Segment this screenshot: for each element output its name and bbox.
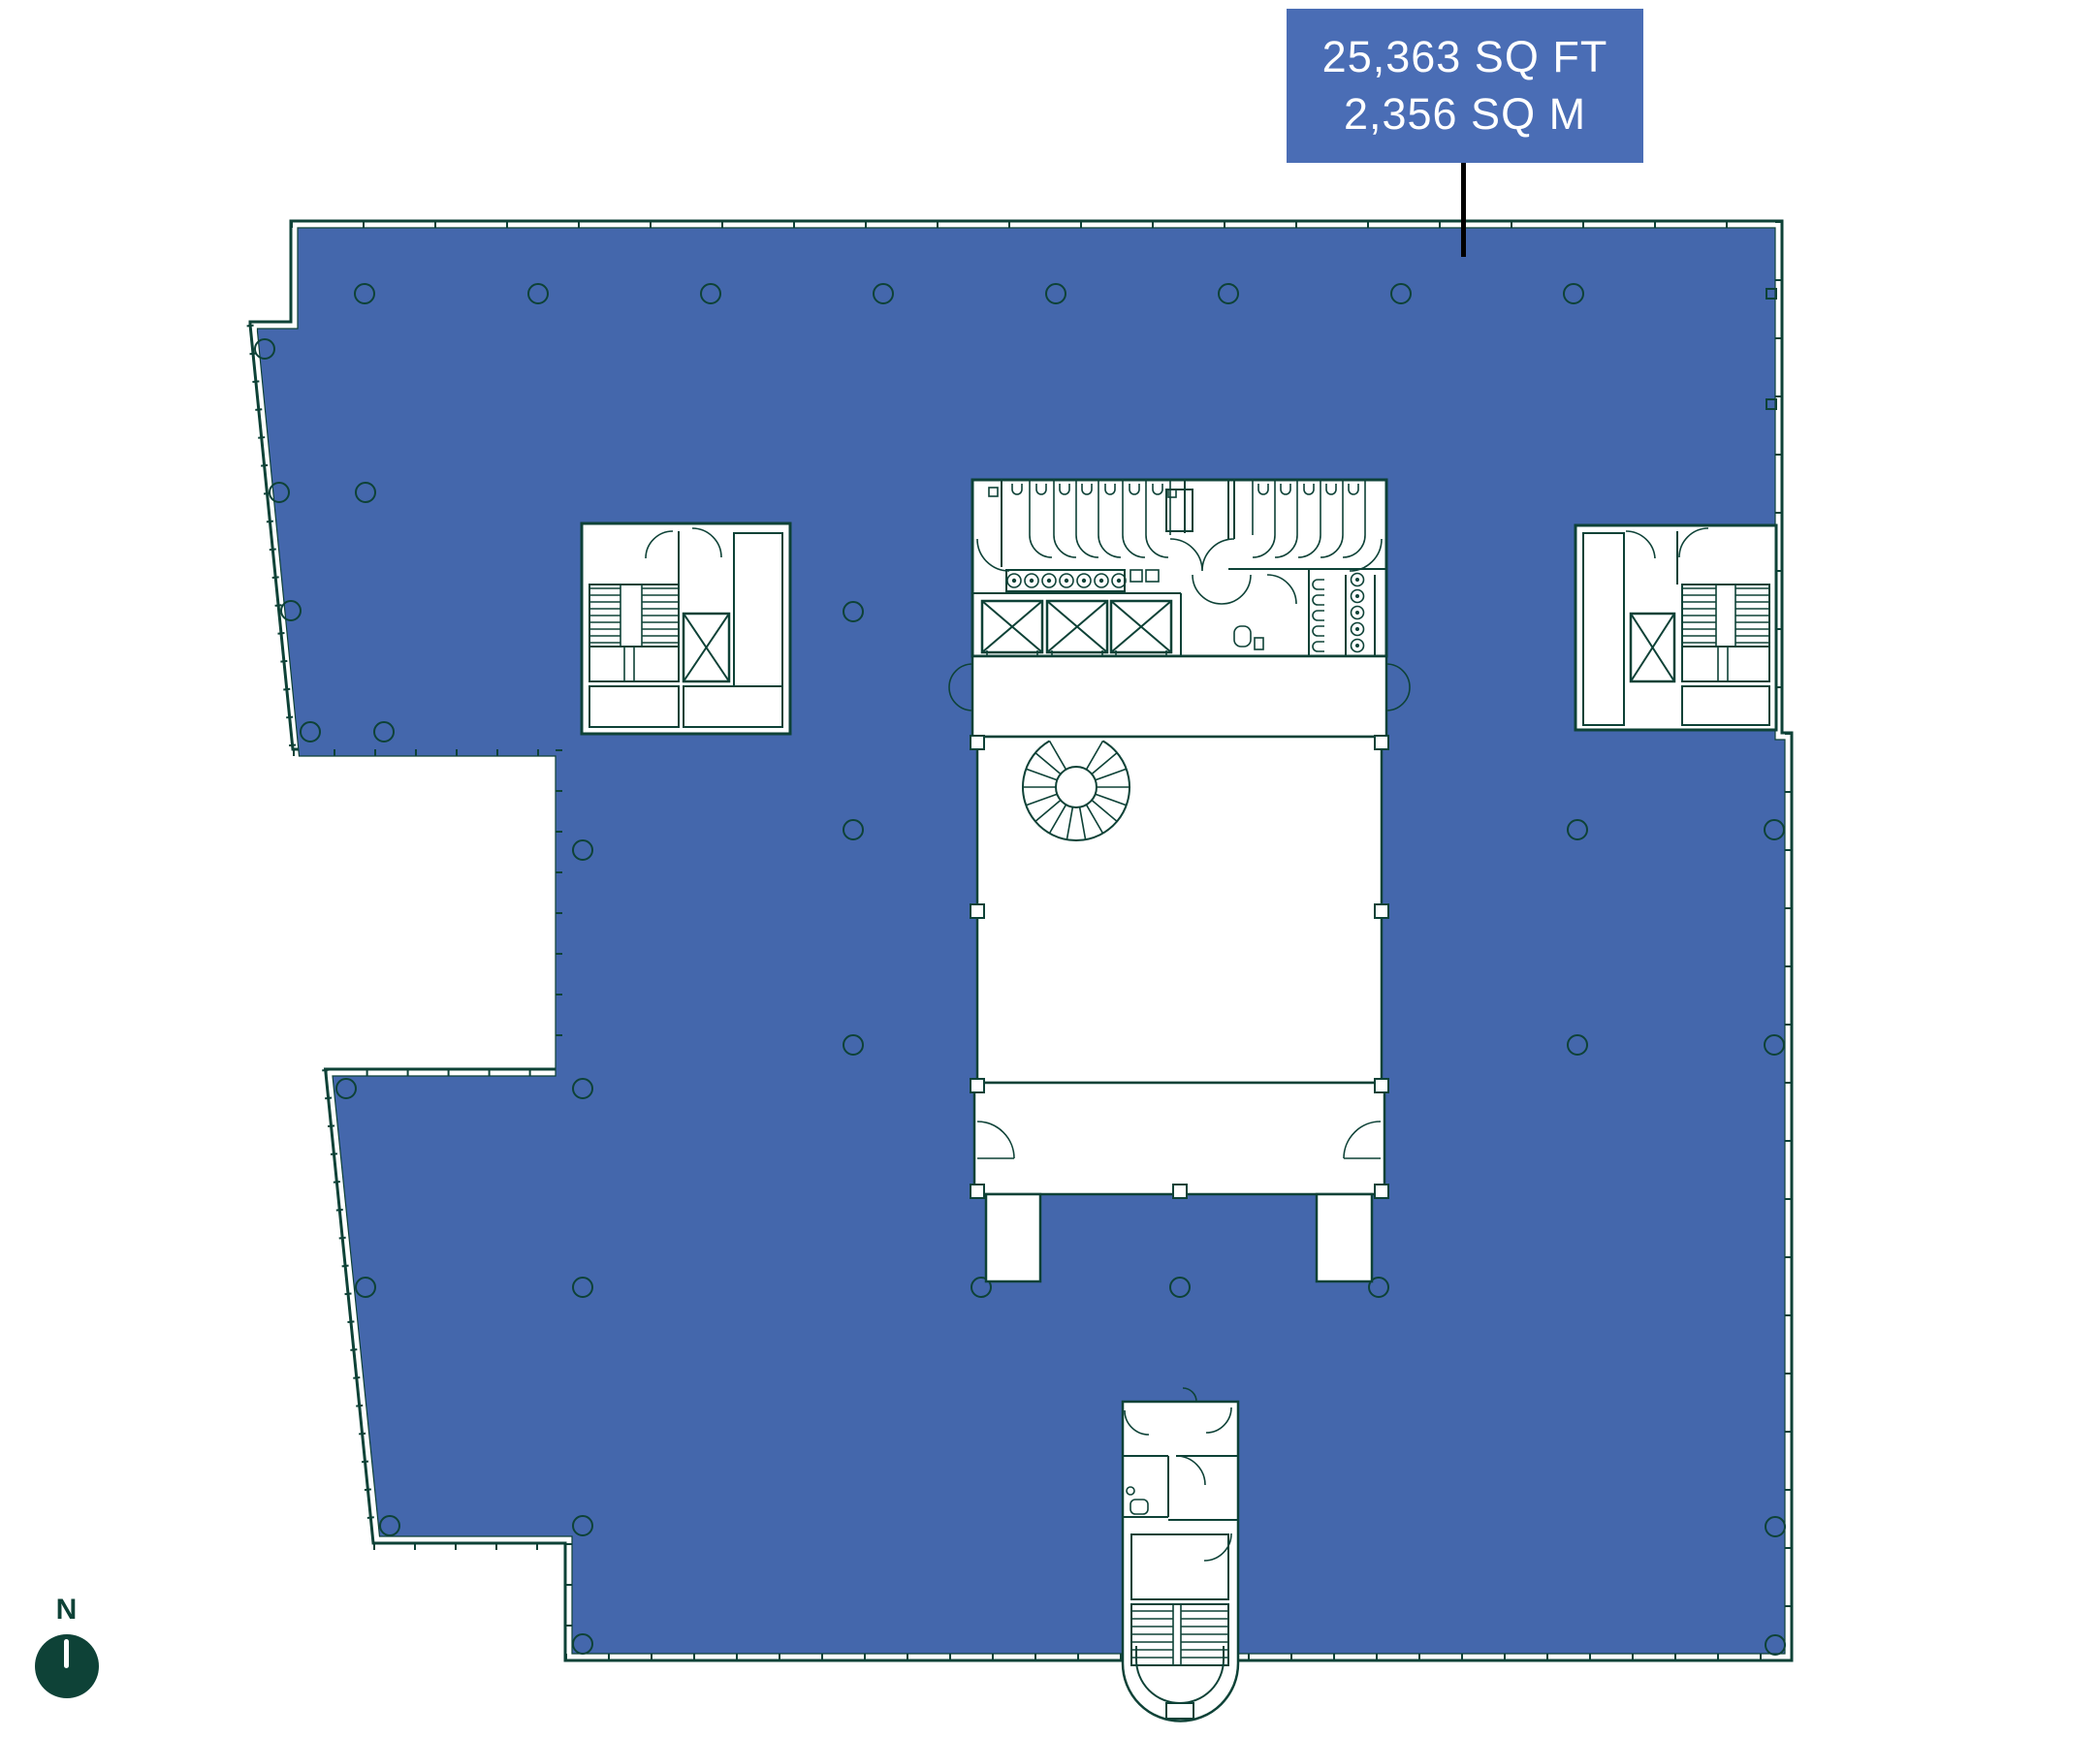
area-sqm: 2,356 SQ M xyxy=(1344,86,1586,143)
east-stair-core xyxy=(1575,525,1776,730)
west-stair-core xyxy=(582,523,790,734)
floorplan-page: 25,363 SQ FT 2,356 SQ M N xyxy=(0,0,2100,1738)
north-indicator: N xyxy=(35,1594,99,1698)
north-label: N xyxy=(35,1594,99,1627)
central-core xyxy=(949,480,1410,1281)
leader-line xyxy=(1461,163,1466,257)
north-needle-icon xyxy=(64,1639,69,1668)
south-stair-core xyxy=(1123,1388,1238,1722)
area-label: 25,363 SQ FT 2,356 SQ M xyxy=(1287,9,1643,163)
north-dial-icon xyxy=(35,1634,99,1698)
area-sqft: 25,363 SQ FT xyxy=(1322,29,1608,86)
floorplan-svg xyxy=(0,0,2100,1738)
lift-lobby xyxy=(949,656,1410,737)
